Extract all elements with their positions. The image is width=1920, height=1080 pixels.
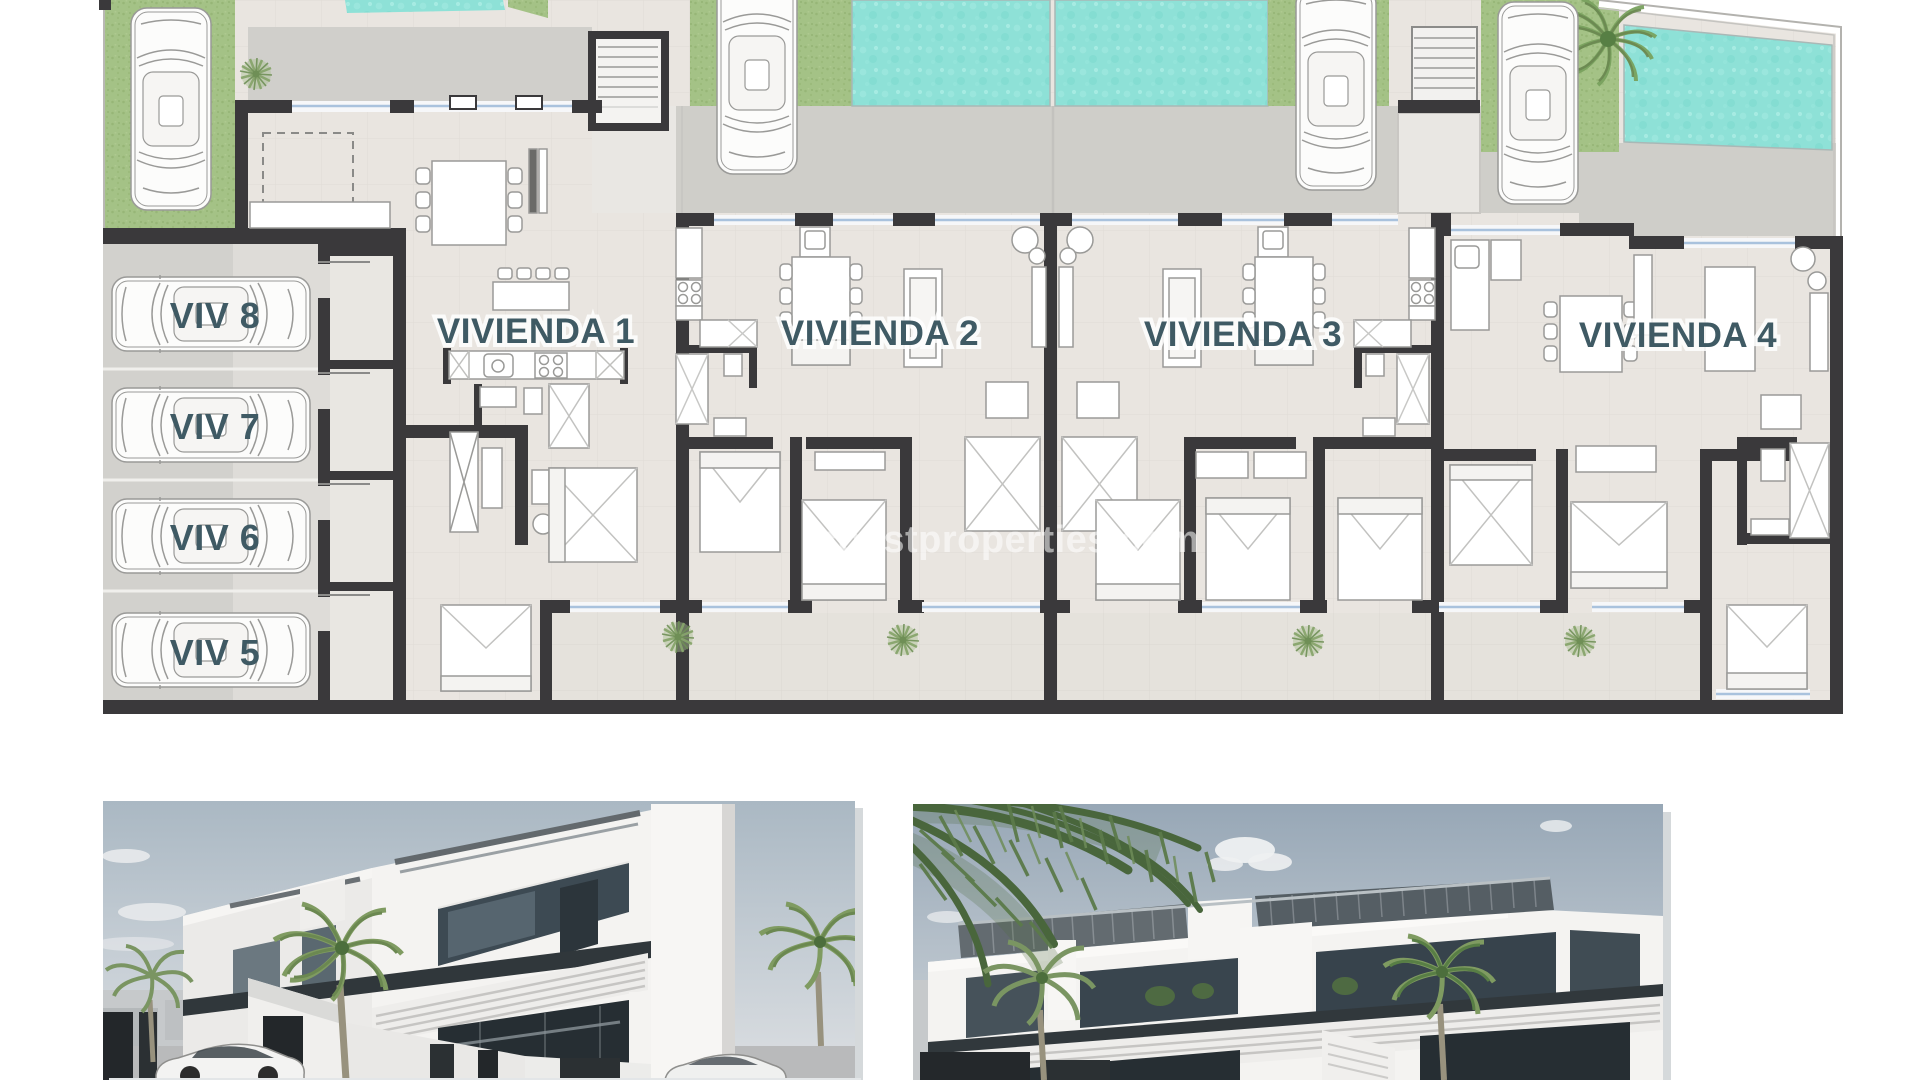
svg-text:VIV 7: VIV 7 xyxy=(170,406,261,447)
svg-text:VIVIENDA 2: VIVIENDA 2 xyxy=(781,314,979,353)
svg-text:coastproperties.com: coastproperties.com xyxy=(816,519,1199,561)
svg-text:VIVIENDA 4: VIVIENDA 4 xyxy=(1579,316,1777,355)
svg-text:VIV 5: VIV 5 xyxy=(170,632,261,673)
svg-text:VIV 8: VIV 8 xyxy=(170,295,261,336)
svg-text:VIVIENDA 3: VIVIENDA 3 xyxy=(1144,315,1342,354)
svg-text:VIVIENDA 1: VIVIENDA 1 xyxy=(437,312,635,351)
svg-text:VIV 6: VIV 6 xyxy=(170,517,261,558)
